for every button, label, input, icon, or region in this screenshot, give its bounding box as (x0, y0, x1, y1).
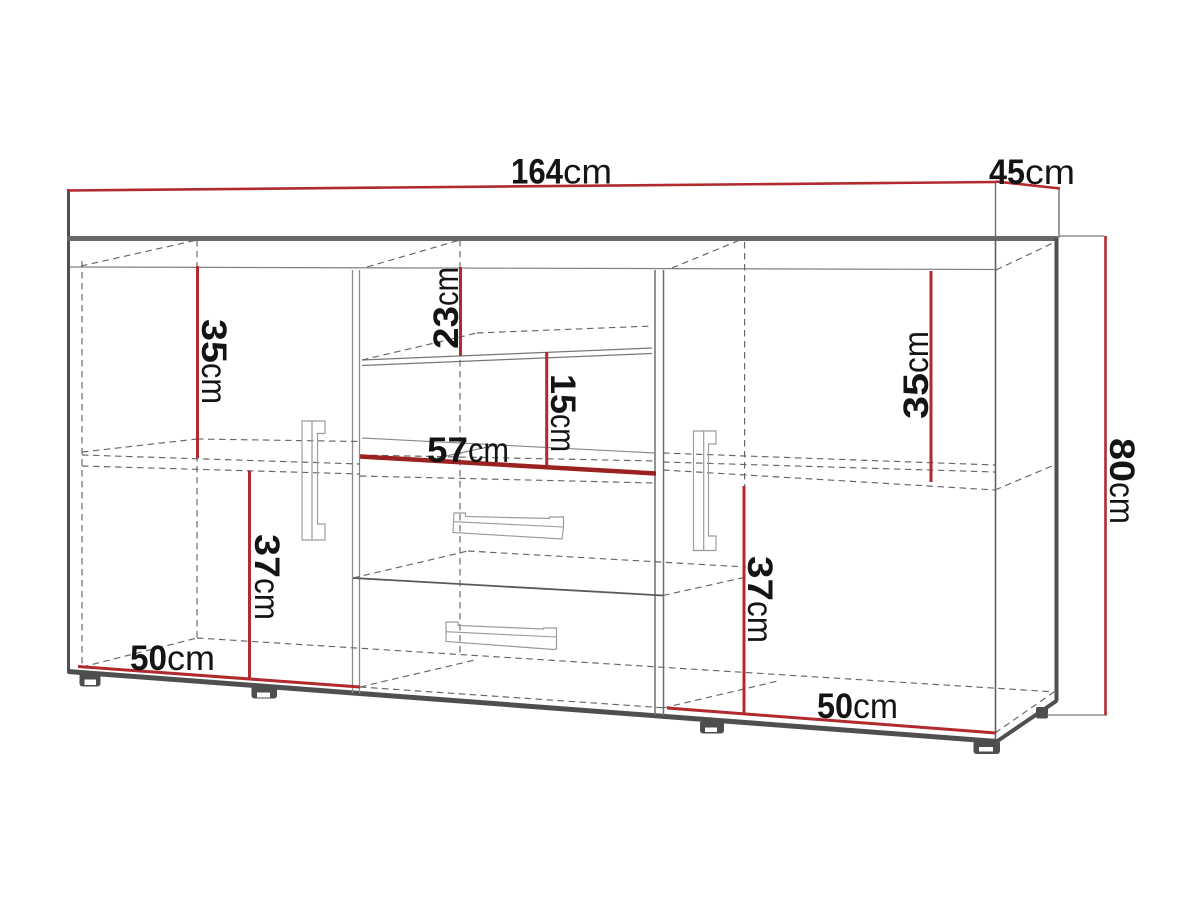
svg-text:80cm: 80cm (1102, 438, 1141, 524)
svg-text:35cm: 35cm (897, 331, 936, 419)
svg-text:35cm: 35cm (194, 319, 233, 404)
svg-text:15cm: 15cm (543, 374, 582, 452)
svg-text:37cm: 37cm (740, 556, 779, 643)
svg-text:50cm: 50cm (817, 687, 898, 726)
svg-text:45cm: 45cm (989, 153, 1075, 192)
svg-text:37cm: 37cm (247, 534, 286, 620)
svg-text:23cm: 23cm (427, 267, 466, 349)
svg-text:50cm: 50cm (130, 639, 215, 678)
svg-text:57cm: 57cm (427, 431, 509, 470)
svg-text:164cm: 164cm (511, 153, 612, 192)
